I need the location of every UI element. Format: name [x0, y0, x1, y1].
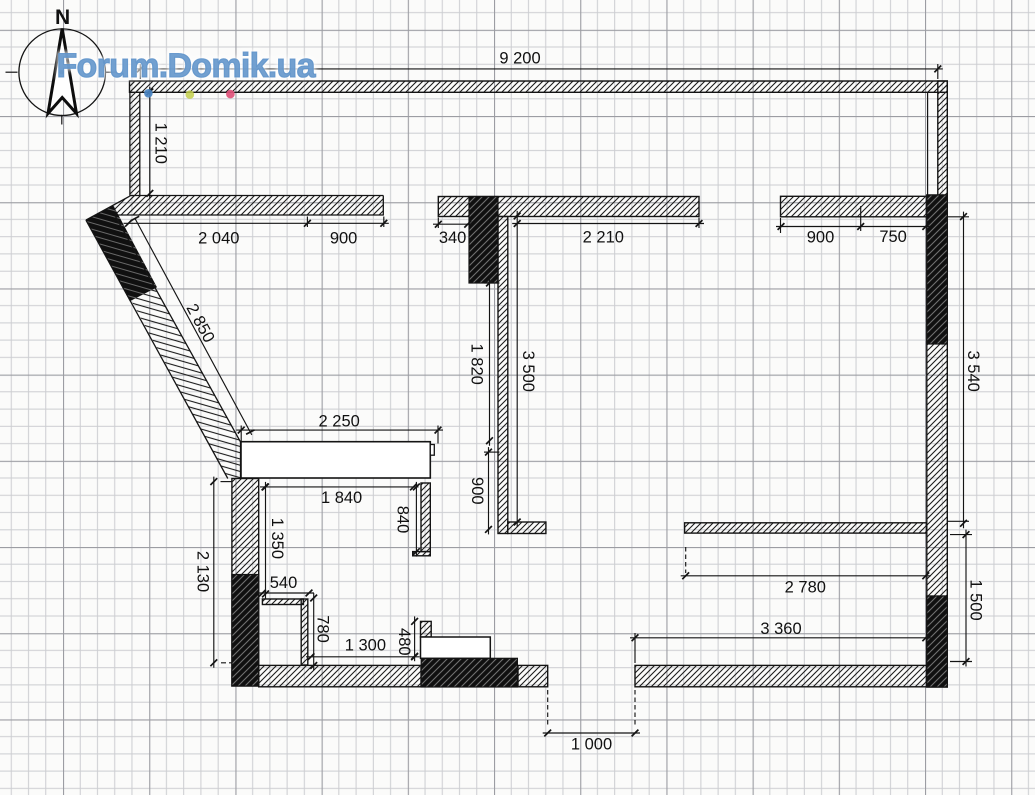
- svg-text:540: 540: [270, 574, 298, 592]
- svg-text:480: 480: [395, 628, 413, 656]
- svg-text:1 840: 1 840: [321, 489, 362, 507]
- svg-text:1 820: 1 820: [468, 344, 486, 385]
- svg-text:1 350: 1 350: [268, 518, 286, 559]
- svg-text:Forum.Domik.ua: Forum.Domik.ua: [57, 47, 317, 85]
- svg-text:2 130: 2 130: [194, 551, 212, 592]
- svg-text:900: 900: [468, 477, 486, 505]
- svg-text:3 360: 3 360: [760, 620, 801, 638]
- svg-text:9 200: 9 200: [499, 50, 540, 68]
- svg-text:3 500: 3 500: [519, 351, 537, 392]
- svg-text:750: 750: [879, 228, 907, 246]
- svg-text:900: 900: [330, 229, 358, 247]
- svg-text:1 000: 1 000: [571, 736, 612, 754]
- svg-text:840: 840: [393, 506, 411, 534]
- svg-text:340: 340: [439, 229, 467, 247]
- svg-text:N: N: [55, 6, 70, 29]
- svg-text:2 250: 2 250: [319, 412, 360, 430]
- svg-text:2 040: 2 040: [198, 229, 239, 247]
- svg-text:1 300: 1 300: [345, 637, 386, 655]
- svg-text:900: 900: [807, 229, 835, 247]
- svg-text:780: 780: [314, 615, 332, 643]
- svg-text:2 780: 2 780: [785, 578, 826, 596]
- svg-text:1 210: 1 210: [152, 123, 170, 164]
- svg-text:1 500: 1 500: [967, 579, 985, 620]
- svg-text:3 540: 3 540: [964, 351, 982, 392]
- svg-text:2 210: 2 210: [583, 228, 624, 246]
